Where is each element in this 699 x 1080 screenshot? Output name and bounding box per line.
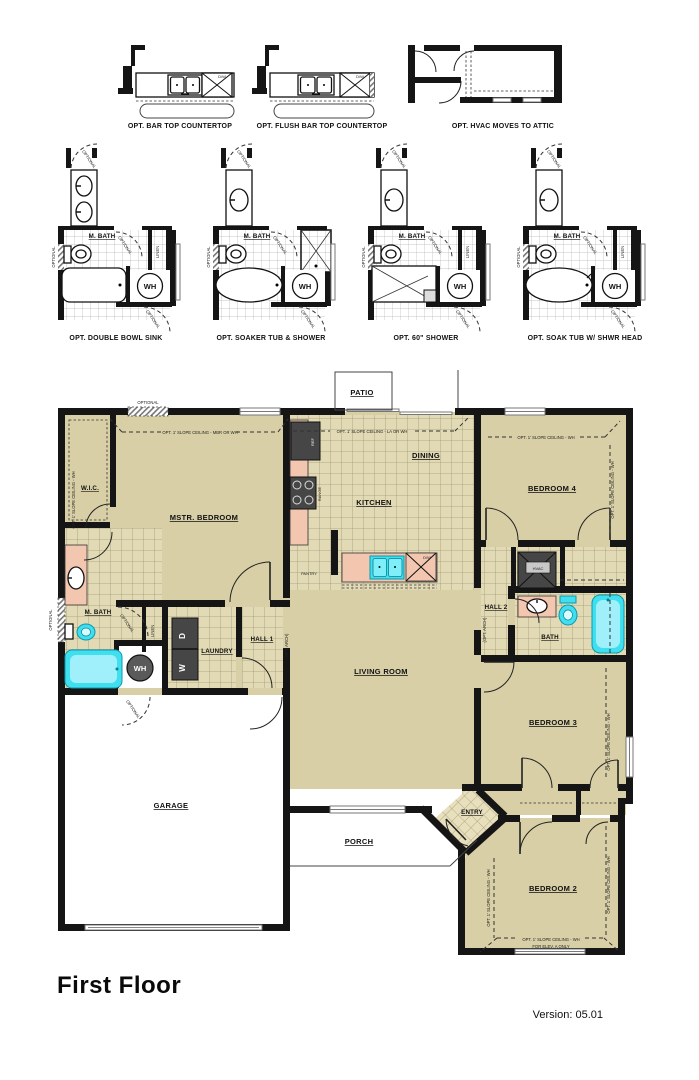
optional-window: [523, 244, 529, 270]
option-60-shower: OPTIONAL OPTIONAL M. BATH OPTIONAL LINEN…: [361, 144, 490, 342]
room-label-m-bath: M. BATH: [244, 233, 271, 240]
ceiling-note: FOR ELEV. A ONLY: [532, 944, 569, 949]
ceiling-note: OPT. 1' SLOPE CEILING - WH: [522, 937, 579, 942]
linen-label: LINEN: [155, 246, 160, 258]
water-heater-label: WH: [144, 282, 157, 291]
shower-drain: [315, 265, 318, 268]
ceiling-note: OPT. 1' SLOPE CEILING - WH: [71, 471, 76, 528]
kitchen-sink: [168, 75, 202, 95]
tub-faucet: [586, 284, 589, 287]
room-label-garage: GARAGE: [154, 801, 189, 810]
mbath-vanity: [65, 545, 87, 605]
room-label-entry: ENTRY: [461, 809, 483, 816]
bar-top-outline: [274, 104, 374, 118]
option-bar-top-countertop: D/W OPT. BAR TOP COUNTERTOP: [118, 45, 234, 130]
room-label-mstr-bedroom: MSTR. BEDROOM: [170, 513, 238, 522]
room-label-hall1: HALL 1: [251, 636, 274, 643]
dishwasher: D/W: [406, 553, 436, 581]
room-label-laundry: LAUNDRY: [201, 648, 233, 655]
vanity: [71, 170, 97, 226]
soak-tub: [526, 268, 592, 302]
room-label-m-bath: M. BATH: [554, 233, 581, 240]
hall1-tile: [242, 607, 283, 688]
soaker-tub: [216, 268, 282, 302]
room-label-m-bath: M. BATH: [85, 609, 112, 616]
dishwasher: D/W: [202, 73, 232, 97]
counter-end: [370, 73, 374, 97]
linen-label: LINEN: [150, 625, 155, 637]
bathtub: [62, 268, 126, 302]
ceiling-note: OPT. 1' SLOPE CEILING - MBR OR WH: [162, 430, 237, 435]
window: [641, 244, 645, 300]
dishwasher-label: D/W: [218, 74, 226, 79]
ceiling-note: OPT. 1' SLOPE CEILING - WH: [610, 461, 615, 518]
bathtub: [65, 650, 122, 688]
toilet: [374, 245, 401, 263]
shower-seat: [424, 290, 436, 302]
room-label-living: LIVING ROOM: [354, 667, 408, 676]
opt-arch-label: (OPT. ARCH): [482, 617, 487, 642]
room-label-bedroom3: BEDROOM 3: [529, 718, 577, 727]
toilet: [219, 245, 246, 263]
option-caption: OPT. BAR TOP COUNTERTOP: [128, 123, 232, 130]
optional-label: OPTIONAL: [361, 246, 366, 268]
svg-text:REF: REF: [310, 437, 315, 446]
svg-text:WH: WH: [134, 664, 147, 673]
window: [505, 408, 545, 415]
tub-faucet: [119, 284, 122, 287]
option-caption: OPT. SOAKER TUB & SHOWER: [216, 335, 325, 342]
window: [331, 244, 335, 300]
toilet: [64, 245, 91, 263]
linen-label: LINEN: [465, 246, 470, 258]
toilet: [559, 596, 577, 625]
room-label-bedroom2: BEDROOM 2: [529, 884, 577, 893]
option-caption: OPT. FLUSH BAR TOP COUNTERTOP: [257, 123, 388, 130]
room-label-m-bath: M. BATH: [399, 233, 426, 240]
optional-label: OPTIONAL: [206, 246, 211, 268]
optional-window: [58, 244, 64, 270]
version-text: Version: 05.01: [533, 1009, 603, 1021]
floorplan-sheet: D/W OPT. BAR TOP COUNTERTOP D/W OPT. FLU…: [0, 0, 699, 1080]
option-caption: OPT. DOUBLE BOWL SINK: [69, 335, 162, 342]
bathtub: [592, 595, 624, 653]
window: [515, 949, 585, 954]
option-soak-tub-shwr-head: OPTIONAL OPTIONAL M. BATH OPTIONAL LINEN…: [516, 144, 645, 342]
sheet-title: First Floor: [57, 972, 181, 999]
optional-label: OPTIONAL: [137, 400, 159, 405]
window: [176, 244, 180, 300]
ceiling-note: OPT. 1' SLOPE CEILING - LA OR WH: [337, 429, 408, 434]
room-label-kitchen: KITCHEN: [356, 498, 391, 507]
hvac-label: HVAC: [533, 566, 544, 571]
pantry-label: PANTRY: [301, 571, 317, 576]
optional-window: [58, 598, 65, 642]
window: [626, 737, 633, 777]
main-floor-plan: OPTIONAL OPTIONAL REF RANGE PANTRY D/W W…: [48, 370, 633, 955]
window: [240, 408, 280, 415]
optional-label: OPTIONAL: [48, 609, 53, 631]
room-label-wic: W.I.C.: [81, 485, 99, 492]
linen-label: LINEN: [620, 246, 625, 258]
opt-arch-label: (OPT. ARCH): [284, 633, 289, 658]
option-caption: OPT. HVAC MOVES TO ATTIC: [452, 123, 554, 130]
ceiling-note: OPT. 1' SLOPE CEILING - WH: [517, 435, 574, 440]
toilet: [529, 245, 556, 263]
garage-door: [85, 925, 262, 930]
shower: [301, 230, 331, 272]
bar-top-outline: [140, 104, 234, 118]
kitchen-sink: [370, 556, 404, 579]
water-heater-label: WH: [609, 282, 622, 291]
optional-window: [213, 244, 219, 270]
room-label-porch: PORCH: [345, 837, 374, 846]
window: [486, 244, 490, 300]
vanity: [536, 170, 562, 226]
hvac-unit: HVAC: [518, 552, 556, 588]
toilet: [65, 624, 95, 640]
option-caption: OPT. 60" SHOWER: [393, 335, 458, 342]
water-heater-label: WH: [454, 282, 467, 291]
water-heater: WH: [127, 655, 153, 681]
window: [493, 98, 511, 102]
dryer-label: D: [178, 633, 187, 639]
svg-text:D/W: D/W: [423, 555, 431, 560]
room-label-bath: BATH: [541, 634, 559, 641]
room-label-hall2: HALL 2: [485, 604, 508, 611]
option-hvac-moves-to-attic: OPT. HVAC MOVES TO ATTIC: [408, 45, 562, 130]
floorplan-drawing: D/W OPT. BAR TOP COUNTERTOP D/W OPT. FLU…: [0, 0, 699, 1080]
optional-label: OPTIONAL: [51, 246, 56, 268]
room-label-bedroom4: BEDROOM 4: [528, 484, 577, 493]
window: [330, 806, 405, 813]
ceiling-note: OPT. 1' SLOPE CEILING - WH: [606, 856, 611, 913]
kitchen-sink: [298, 75, 334, 95]
door-arc: [439, 81, 461, 103]
water-heater-label: WH: [299, 282, 312, 291]
washer-dryer: DW: [172, 618, 198, 680]
room-label-patio: PATIO: [350, 388, 373, 397]
tub-faucet: [276, 284, 279, 287]
optional-label: OPTIONAL: [516, 246, 521, 268]
door-arc: [415, 51, 436, 72]
option-flush-bar-top-countertop: D/W OPT. FLUSH BAR TOP COUNTERTOP: [252, 45, 387, 130]
vanity: [226, 170, 252, 226]
option-caption: OPT. SOAK TUB W/ SHWR HEAD: [528, 335, 643, 342]
dishwasher: D/W: [340, 73, 370, 97]
ceiling-note: OPT. 1' SLOPE CEILING - WH: [606, 713, 611, 770]
ceiling-note: OPT. 1' SLOPE CEILING - WH: [486, 869, 491, 926]
washer-label: W: [178, 664, 187, 672]
optional-wall-section: [128, 407, 168, 416]
wall: [408, 45, 562, 103]
room-label-m-bath: M. BATH: [89, 233, 116, 240]
option-double-bowl-sink: OPTIONAL OPTIONAL M. BATH OPTIONAL LINEN…: [51, 144, 180, 342]
window: [523, 98, 541, 102]
dishwasher-label: D/W: [356, 74, 364, 79]
svg-text:RANGE: RANGE: [317, 487, 322, 502]
room-label-dining: DINING: [412, 451, 440, 460]
vanity: [381, 170, 407, 226]
shower: [372, 266, 436, 302]
option-soaker-tub-shower: OPTIONAL OPTIONAL M. BATH OPTIONAL WH OP…: [206, 144, 335, 342]
refrigerator: REF: [291, 422, 320, 460]
